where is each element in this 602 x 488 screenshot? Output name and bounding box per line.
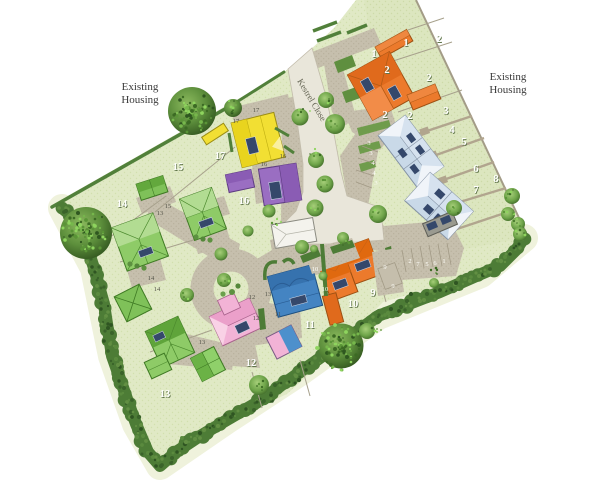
svg-text:10: 10 bbox=[348, 299, 359, 310]
svg-text:1: 1 bbox=[442, 258, 445, 265]
svg-text:7: 7 bbox=[473, 185, 478, 196]
svg-text:17: 17 bbox=[233, 118, 240, 125]
svg-text:13: 13 bbox=[199, 339, 206, 346]
svg-text:15: 15 bbox=[173, 162, 184, 173]
svg-text:3: 3 bbox=[443, 106, 448, 117]
svg-text:5: 5 bbox=[461, 137, 466, 148]
svg-text:11: 11 bbox=[305, 320, 315, 331]
svg-text:13: 13 bbox=[265, 291, 272, 298]
svg-text:13: 13 bbox=[157, 210, 164, 217]
svg-text:12: 12 bbox=[249, 294, 256, 301]
svg-text:6: 6 bbox=[473, 164, 478, 175]
svg-text:10: 10 bbox=[312, 266, 319, 273]
svg-text:14: 14 bbox=[148, 275, 155, 282]
svg-text:12: 12 bbox=[253, 315, 260, 322]
svg-text:9: 9 bbox=[370, 288, 375, 299]
svg-text:2: 2 bbox=[408, 258, 411, 265]
svg-text:17: 17 bbox=[215, 151, 226, 162]
svg-text:3: 3 bbox=[374, 180, 377, 187]
svg-text:9: 9 bbox=[383, 264, 386, 271]
svg-text:2: 2 bbox=[426, 73, 431, 84]
svg-text:2: 2 bbox=[384, 65, 389, 76]
svg-text:1: 1 bbox=[403, 38, 408, 49]
svg-text:5: 5 bbox=[425, 261, 428, 268]
svg-text:16: 16 bbox=[261, 161, 268, 168]
svg-text:16: 16 bbox=[239, 196, 250, 207]
svg-text:Existing: Existing bbox=[122, 81, 159, 93]
svg-text:13: 13 bbox=[160, 389, 171, 400]
svg-text:2: 2 bbox=[382, 110, 387, 121]
svg-text:14: 14 bbox=[154, 286, 161, 293]
svg-text:16: 16 bbox=[280, 153, 287, 160]
svg-text:12: 12 bbox=[246, 358, 257, 369]
svg-text:Existing: Existing bbox=[490, 71, 527, 83]
svg-text:4: 4 bbox=[449, 125, 455, 136]
svg-text:2: 2 bbox=[407, 111, 412, 122]
svg-text:8: 8 bbox=[493, 174, 498, 185]
svg-text:3: 3 bbox=[369, 150, 372, 157]
svg-text:10: 10 bbox=[322, 286, 329, 293]
svg-text:Housing: Housing bbox=[121, 94, 159, 106]
svg-text:3: 3 bbox=[367, 140, 370, 147]
svg-text:15: 15 bbox=[165, 203, 172, 210]
svg-text:14: 14 bbox=[117, 199, 128, 210]
svg-text:2: 2 bbox=[436, 34, 441, 45]
svg-text:11: 11 bbox=[275, 311, 281, 318]
svg-text:17: 17 bbox=[253, 107, 260, 114]
svg-text:9: 9 bbox=[391, 283, 394, 290]
svg-text:1: 1 bbox=[371, 49, 376, 60]
svg-text:Housing: Housing bbox=[489, 84, 527, 96]
